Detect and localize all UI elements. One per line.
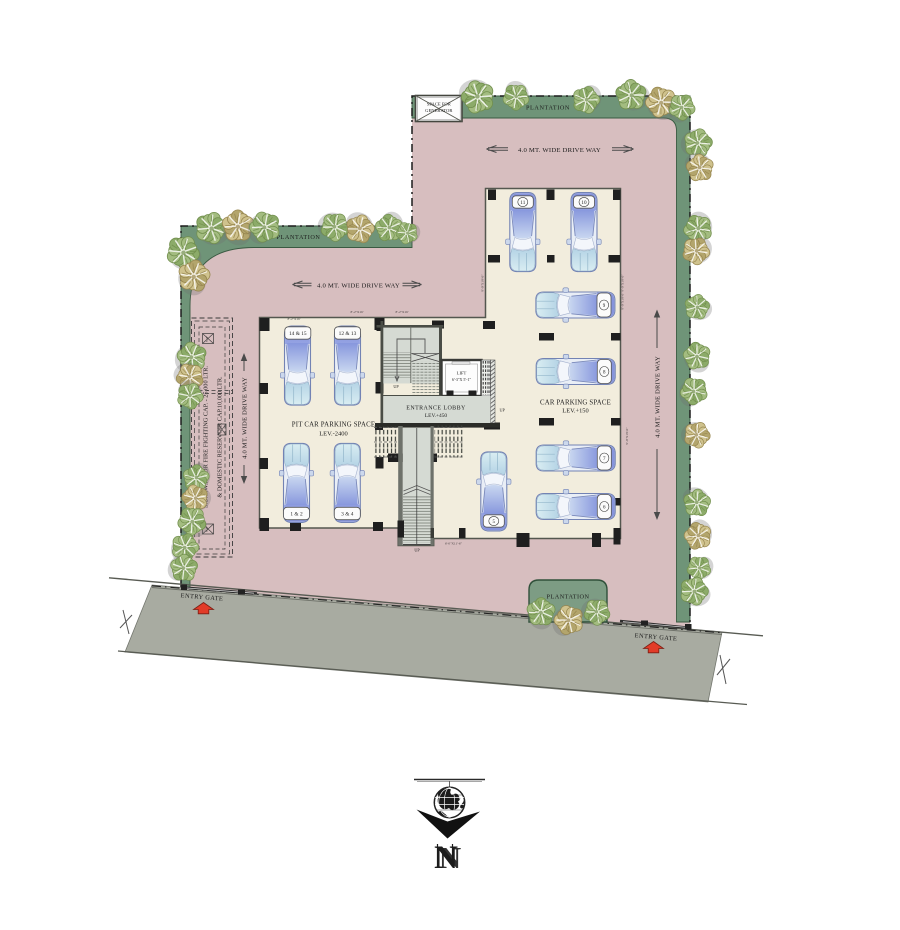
svg-text:UP: UP	[393, 384, 399, 389]
svg-text:9'-0"X18'-0": 9'-0"X18'-0"	[625, 427, 629, 445]
svg-text:5'-0": 5'-0"	[205, 525, 209, 532]
svg-text:8'-2"X16': 8'-2"X16'	[288, 317, 301, 321]
svg-text:CAR PARKING SPACE: CAR PARKING SPACE	[540, 400, 611, 407]
svg-text:11: 11	[520, 200, 525, 206]
svg-text:GENERATOR: GENERATOR	[425, 108, 453, 113]
svg-text:PLANTATION: PLANTATION	[277, 234, 321, 241]
svg-text:PIT CAR PARKING SPACE: PIT CAR PARKING SPACE	[292, 422, 375, 429]
svg-text:LIFT: LIFT	[457, 371, 467, 376]
svg-text:& DOMESTIC RESERVOIR CAP.10,00: & DOMESTIC RESERVOIR CAP.10,000 LTR.	[217, 376, 224, 498]
svg-text:UP: UP	[500, 408, 506, 413]
svg-text:4.0 MT. WIDE DRIVE WAY: 4.0 MT. WIDE DRIVE WAY	[317, 282, 400, 289]
svg-text:ENTRANCE LOBBY: ENTRANCE LOBBY	[406, 406, 466, 412]
svg-text:3 & 4: 3 & 4	[341, 512, 354, 518]
svg-text:12 & 13: 12 & 13	[339, 331, 357, 337]
svg-text:14 & 15: 14 & 15	[289, 331, 307, 337]
svg-text:SPACE FOR: SPACE FOR	[427, 102, 452, 107]
svg-text:8'-2"X16': 8'-2"X16'	[351, 310, 364, 314]
svg-text:9'-0"X18'-0": 9'-0"X18'-0"	[621, 292, 625, 310]
svg-text:LEV.+450: LEV.+450	[425, 413, 448, 419]
svg-text:8'-2"X16': 8'-2"X16'	[396, 310, 409, 314]
svg-text:4.0 MT. WIDE DRIVE WAY: 4.0 MT. WIDE DRIVE WAY	[655, 356, 662, 438]
svg-text:4.0 MT. WIDE DRIVE WAY: 4.0 MT. WIDE DRIVE WAY	[242, 377, 249, 459]
svg-text:10: 10	[581, 200, 587, 206]
svg-text:PLANTATION: PLANTATION	[547, 594, 590, 601]
svg-text:N: N	[439, 840, 461, 875]
svg-text:4.0 MT. WIDE DRIVE WAY: 4.0 MT. WIDE DRIVE WAY	[518, 147, 601, 154]
svg-text:6'-3"X 5'-1": 6'-3"X 5'-1"	[452, 377, 472, 382]
svg-text:LEV.+150: LEV.+150	[562, 408, 588, 415]
svg-text:5'-0": 5'-0"	[205, 335, 209, 342]
svg-text:UP: UP	[414, 548, 420, 553]
svg-text:9'-0"X18'-0": 9'-0"X18'-0"	[621, 274, 625, 292]
svg-text:1 & 2: 1 & 2	[290, 512, 303, 518]
svg-text:9'-0"X18'-0": 9'-0"X18'-0"	[481, 274, 485, 292]
svg-text:6'-0"X11'-6": 6'-0"X11'-6"	[445, 542, 463, 546]
svg-text:LEV.-2400: LEV.-2400	[319, 431, 348, 438]
svg-text:PLANTATION: PLANTATION	[526, 105, 570, 112]
